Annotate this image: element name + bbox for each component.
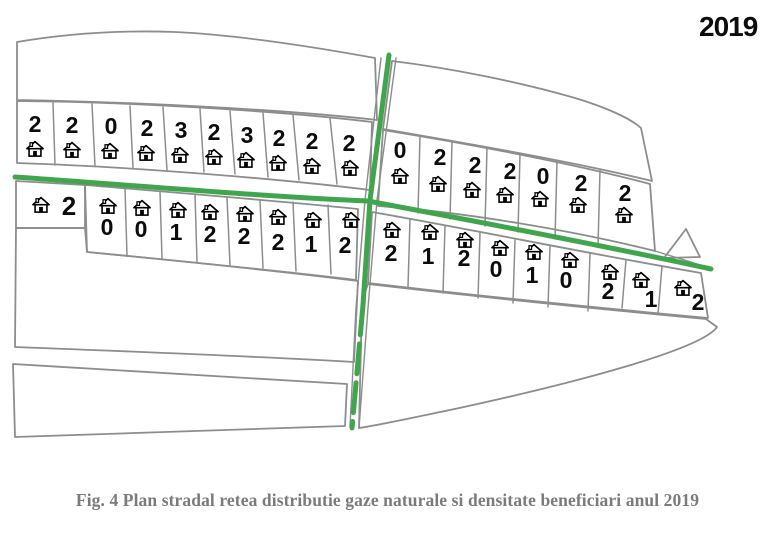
house-icon: [532, 192, 548, 207]
parcel-divider: [163, 107, 167, 170]
house-icon: [33, 198, 49, 213]
parcel-divider: [293, 202, 296, 271]
house-icon: [675, 281, 691, 296]
parcel-divider: [598, 170, 600, 246]
figure-page: 22023232220222022001222122120102122 2019…: [0, 0, 775, 541]
parcel-marker: 2: [602, 265, 618, 304]
parcel-count: 2: [273, 125, 286, 151]
parcel-count: 2: [458, 245, 471, 271]
parcel-divider: [260, 200, 263, 268]
parcel-count: 3: [241, 122, 254, 148]
parcel-divider: [478, 233, 480, 298]
house-icon: [492, 241, 508, 256]
parcel-divider: [513, 240, 515, 303]
parcel-count: 2: [208, 119, 221, 145]
parcel-count: 1: [526, 262, 539, 288]
parcel-divider: [548, 246, 550, 307]
parcel-divider: [263, 113, 268, 177]
house-icon: [422, 225, 438, 240]
parcel-divider: [230, 111, 235, 174]
parcel-marker: 0: [490, 241, 508, 282]
parcel-count: 0: [101, 214, 114, 240]
parcel-marker: 2: [342, 130, 358, 175]
house-icon: [570, 198, 586, 213]
parcel-marker: 0: [392, 137, 408, 183]
parcel-divider: [130, 106, 133, 168]
house-icon: [562, 253, 578, 268]
parcel-count: 2: [469, 152, 482, 178]
parcel-count: 2: [692, 289, 705, 315]
parcel-marker: 3: [172, 117, 188, 162]
parcel-divider: [443, 226, 445, 293]
parcel-count: 2: [62, 191, 76, 221]
parcel-count: 2: [29, 111, 42, 137]
parcel-count: 0: [490, 256, 503, 282]
house-icon: [102, 144, 118, 159]
house-icon: [206, 150, 222, 165]
parcel-count: 2: [204, 221, 217, 247]
parcel-marker: 1: [305, 213, 321, 257]
parcel-divider: [293, 115, 299, 180]
parcel-count: 1: [422, 243, 435, 269]
parcel-divider: [418, 136, 420, 213]
parcel-divider: [195, 194, 197, 262]
parcel-marker: 1: [526, 245, 542, 288]
parcel-count: 0: [537, 163, 550, 189]
parcel-marker: 0: [560, 253, 578, 293]
house-icon: [304, 159, 320, 174]
parcel-count: 2: [306, 128, 319, 154]
parcel-divider: [125, 188, 127, 256]
parcel-count: 2: [141, 115, 154, 141]
parcel-marker: 2: [202, 205, 218, 247]
parcel-marker: 0: [532, 163, 549, 206]
parcel-marker: 2: [138, 115, 154, 160]
house-icon: [392, 169, 408, 184]
parcel-divider: [200, 109, 204, 172]
parcel-marker: 1: [170, 203, 186, 245]
parcel-marker: 2: [237, 207, 253, 249]
parcel-divider: [622, 260, 626, 308]
parcel-marker: 0: [102, 113, 118, 158]
parcel-count: 2: [385, 240, 398, 266]
house-icon: [526, 245, 542, 260]
parcel-count: 2: [575, 170, 588, 196]
parcel-marker: 0: [134, 201, 150, 242]
house-icon: [464, 183, 480, 198]
parcel-marker: 1: [422, 225, 438, 269]
parcel-divider: [518, 154, 520, 232]
house-icon: [138, 146, 154, 161]
parcel-marker: 3: [238, 122, 254, 167]
parcel-divider: [408, 219, 410, 287]
parcel-count: 0: [135, 216, 148, 242]
parcel-count: 2: [619, 180, 632, 206]
parcel-marker: 2: [430, 144, 446, 191]
house-icon: [270, 156, 286, 171]
parcel-count: 2: [339, 232, 352, 258]
house-icon: [342, 161, 358, 176]
house-icon: [170, 203, 186, 218]
parcel-count: 2: [343, 130, 356, 156]
parcel-divider: [160, 191, 162, 259]
parcel-count: 2: [602, 278, 615, 304]
house-icon: [270, 210, 286, 225]
parcel-count: 3: [175, 117, 188, 143]
road-edges: [350, 58, 710, 428]
street-plan-map: 22023232220222022001222122120102122: [0, 0, 775, 466]
parcel-divider: [485, 148, 487, 226]
house-icon: [237, 207, 253, 222]
house-icon: [616, 208, 632, 223]
house-icon: [430, 177, 446, 192]
parcel-marker: 2: [206, 119, 222, 164]
top-right-strip: [383, 61, 652, 181]
house-icon: [633, 273, 649, 288]
bottom-right-wing: [359, 284, 717, 428]
parcel-divider: [92, 104, 95, 166]
house-icon: [602, 265, 618, 280]
house-icon: [100, 199, 116, 214]
parcel-count: 1: [170, 219, 183, 245]
parcel-count: 2: [434, 144, 447, 170]
parcel-divider: [227, 197, 230, 265]
parcel-marker: 2: [384, 223, 400, 266]
parcel-marker: 2: [675, 281, 704, 315]
parcel-count: 0: [105, 113, 118, 139]
house-icon: [64, 143, 80, 158]
parcel-marker: 2: [457, 233, 473, 271]
house-icon: [172, 148, 188, 163]
parcel-divider: [450, 142, 452, 219]
parcel-marker: 2: [33, 191, 76, 221]
parcel-count: 1: [305, 231, 318, 257]
parcel-marker: 2: [464, 152, 481, 197]
parcel-marker: 2: [64, 112, 80, 157]
small-triangle-parcel: [664, 229, 700, 258]
parcel-marker: 2: [27, 111, 43, 156]
parcel-divider: [555, 161, 557, 239]
house-icon: [305, 213, 321, 228]
parcel-marker: 2: [270, 125, 286, 170]
parcel-divider: [328, 205, 331, 274]
parcel-marker: 2: [304, 128, 320, 173]
house-icon: [202, 205, 218, 220]
parcel-count: 1: [645, 286, 658, 312]
parcel-marker: 2: [616, 180, 632, 222]
house-icon: [343, 213, 359, 228]
parcel-divider: [330, 118, 337, 184]
parcel-marker: 1: [633, 273, 658, 312]
parcel-marker: 2: [270, 210, 286, 255]
house-icon: [27, 142, 43, 157]
parcel-count: 0: [560, 267, 573, 293]
parcel-outlines: [13, 31, 717, 437]
house-icon: [384, 223, 400, 238]
bottom-left-strip: [13, 364, 347, 437]
year-label: 2019: [699, 11, 757, 43]
parcel-marker: 0: [100, 199, 116, 240]
parcel-count: 2: [66, 112, 79, 138]
house-icon: [497, 188, 513, 203]
house-icon: [238, 153, 254, 168]
parcel-count: 0: [394, 137, 407, 163]
parcel-count: 2: [504, 158, 517, 184]
parcel-marker: 2: [497, 158, 516, 202]
parcel-marker: 2: [570, 170, 587, 212]
parcel-divider: [53, 103, 55, 165]
figure-caption: Fig. 4 Plan stradal retea distributie ga…: [0, 490, 775, 511]
parcel-divider: [588, 254, 590, 311]
house-icon: [134, 201, 150, 216]
parcel-divider: [658, 266, 662, 314]
parcel-count: 2: [238, 223, 251, 249]
parcel-count: 2: [272, 229, 285, 255]
